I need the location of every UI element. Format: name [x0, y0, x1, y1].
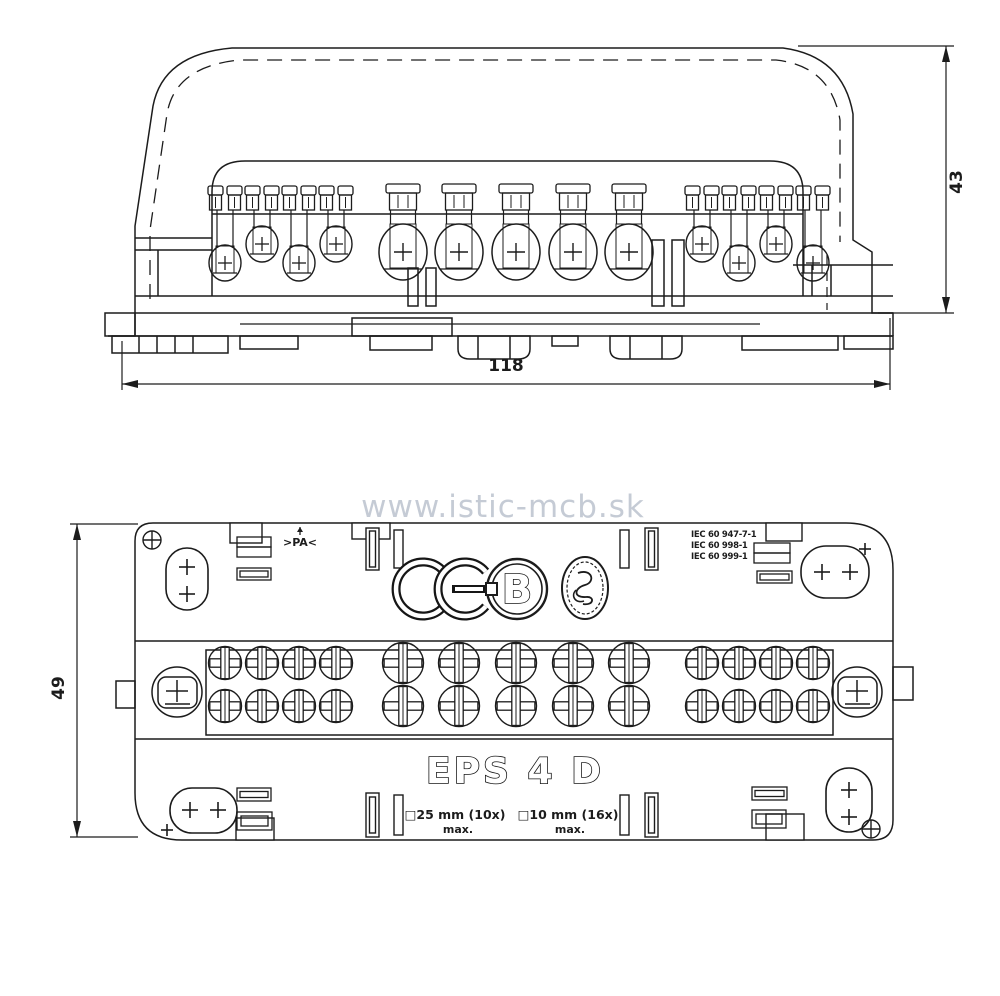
terminal-screw [723, 647, 756, 680]
front-terminal-small [759, 186, 793, 262]
technical-drawing-page: 118 43 www.istic-mcb.sk [0, 0, 1000, 996]
terminal-screw [496, 686, 537, 727]
front-terminal-small [245, 186, 279, 262]
plan-screw-grid [209, 643, 830, 727]
terminal-screw [439, 643, 480, 684]
material-marking-arrows [297, 527, 303, 535]
standard-line-3: IEC 60 999-1 [691, 552, 748, 562]
terminal-screw [383, 643, 424, 684]
wire-spec-large-size: □25 mm (10x) [405, 807, 506, 822]
b-mark-letter: B [502, 567, 533, 613]
terminal-screw [209, 647, 242, 680]
wire-spec-large: □25 mm (10x) max. [405, 807, 506, 836]
front-terminal-small [722, 186, 756, 281]
dimension-width [122, 318, 890, 390]
front-terminal-large [605, 184, 653, 280]
wire-spec-small: □10 mm (16x) max. [518, 807, 619, 836]
certification-emblem [562, 557, 608, 619]
right-side-tab [893, 667, 913, 700]
width-dimension-label: 118 [488, 356, 524, 376]
terminal-screw [760, 647, 793, 680]
arrowhead [942, 297, 950, 313]
depth-dimension-label: 49 [49, 676, 69, 700]
front-terminal-small [282, 186, 316, 281]
partition-slot [426, 268, 436, 306]
arrowhead [73, 821, 81, 837]
standards-block: IEC 60 947-7-1 IEC 60 998-1 IEC 60 999-1 [691, 530, 757, 562]
front-terminal-small [796, 186, 830, 281]
terminal-strip-outline [212, 161, 803, 296]
front-terminals [208, 184, 830, 281]
terminal-screw [246, 690, 279, 723]
partition-slot [408, 268, 418, 306]
height-dimension-label: 43 [947, 170, 967, 194]
housing-outline [135, 48, 893, 336]
arrowhead [73, 524, 81, 540]
front-terminal-large [435, 184, 483, 280]
arrowhead [942, 46, 950, 62]
left-step [105, 313, 135, 336]
terminal-screw [686, 647, 719, 680]
front-view [105, 48, 893, 359]
left-side-tab [116, 681, 135, 708]
terminal-block-drawing: 118 43 www.istic-mcb.sk [0, 0, 1000, 996]
arrowhead [874, 380, 890, 388]
terminal-screw [320, 647, 353, 680]
front-terminal-large [549, 184, 597, 280]
ce-mark-logo [396, 562, 486, 616]
wire-spec-small-size: □10 mm (16x) [518, 807, 619, 822]
terminal-screw [383, 686, 424, 727]
wire-spec-small-max: max. [555, 823, 585, 836]
end-terminal-left [152, 667, 202, 717]
terminal-screw [209, 690, 242, 723]
watermark-text: www.istic-mcb.sk [361, 489, 645, 525]
front-terminal-large [379, 184, 427, 280]
terminal-screw [320, 690, 353, 723]
front-terminal-small [208, 186, 242, 281]
terminal-screw [609, 643, 650, 684]
wire-spec-large-max: max. [443, 823, 473, 836]
model-label: EPS 4 D [426, 751, 604, 792]
standard-line-1: IEC 60 947-7-1 [691, 530, 757, 540]
front-terminal-small [685, 186, 719, 262]
standard-line-2: IEC 60 998-1 [691, 541, 748, 551]
arrowhead [122, 380, 138, 388]
terminal-screw [797, 647, 830, 680]
end-terminal-right [832, 667, 882, 717]
terminal-screw [439, 686, 480, 727]
terminal-screw [723, 690, 756, 723]
terminal-screw [553, 686, 594, 727]
material-marking: >PA< [283, 536, 317, 549]
din-clip [610, 336, 682, 359]
terminal-screw [797, 690, 830, 723]
terminal-screw [760, 690, 793, 723]
terminal-screw [686, 690, 719, 723]
front-terminal-small [319, 186, 353, 262]
terminal-screw [496, 643, 537, 684]
terminal-screw [553, 643, 594, 684]
terminal-screw [283, 690, 316, 723]
front-terminal-large [492, 184, 540, 280]
terminal-screw [283, 647, 316, 680]
terminal-screw [609, 686, 650, 727]
terminal-screw [246, 647, 279, 680]
